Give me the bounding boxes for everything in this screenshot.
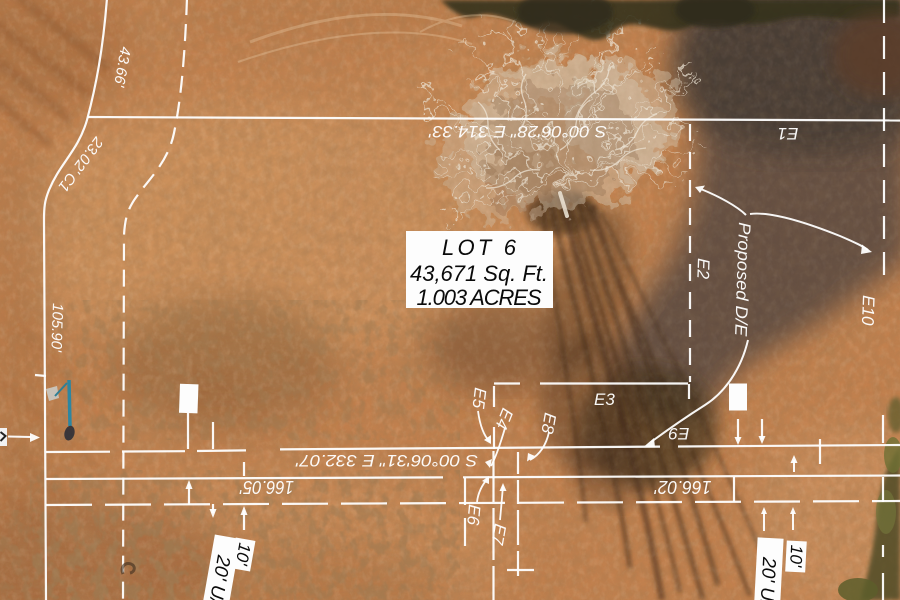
svg-text:166.02': 166.02' bbox=[654, 477, 712, 497]
svg-text:20' U/E: 20' U/E bbox=[755, 556, 779, 600]
svg-text:43,671 Sq. Ft.: 43,671 Sq. Ft. bbox=[410, 261, 548, 286]
svg-text:166.05': 166.05' bbox=[239, 477, 294, 497]
svg-text:1.003 ACRES: 1.003 ACRES bbox=[417, 285, 542, 310]
svg-text:E9: E9 bbox=[668, 424, 689, 443]
svg-text:E1: E1 bbox=[778, 124, 799, 143]
svg-text:E2: E2 bbox=[693, 258, 713, 280]
svg-text:105.90': 105.90' bbox=[47, 303, 66, 353]
svg-text:E6: E6 bbox=[463, 504, 484, 527]
svg-text:E8: E8 bbox=[537, 411, 559, 435]
svg-text:Proposed D/E: Proposed D/E bbox=[731, 222, 754, 337]
svg-text:E3: E3 bbox=[594, 390, 615, 409]
svg-text:10': 10' bbox=[786, 544, 806, 568]
svg-text:E10: E10 bbox=[858, 295, 878, 326]
svg-text:LOT 6: LOT 6 bbox=[442, 235, 517, 260]
svg-text:E5: E5 bbox=[468, 387, 489, 410]
svg-text:10': 10' bbox=[232, 541, 255, 567]
svg-text:S 00°06'28" E 314.33': S 00°06'28" E 314.33' bbox=[428, 122, 607, 140]
svg-text:E7: E7 bbox=[487, 522, 509, 546]
svg-text:S 00°06'31" E 332.07': S 00°06'31" E 332.07' bbox=[295, 451, 478, 469]
